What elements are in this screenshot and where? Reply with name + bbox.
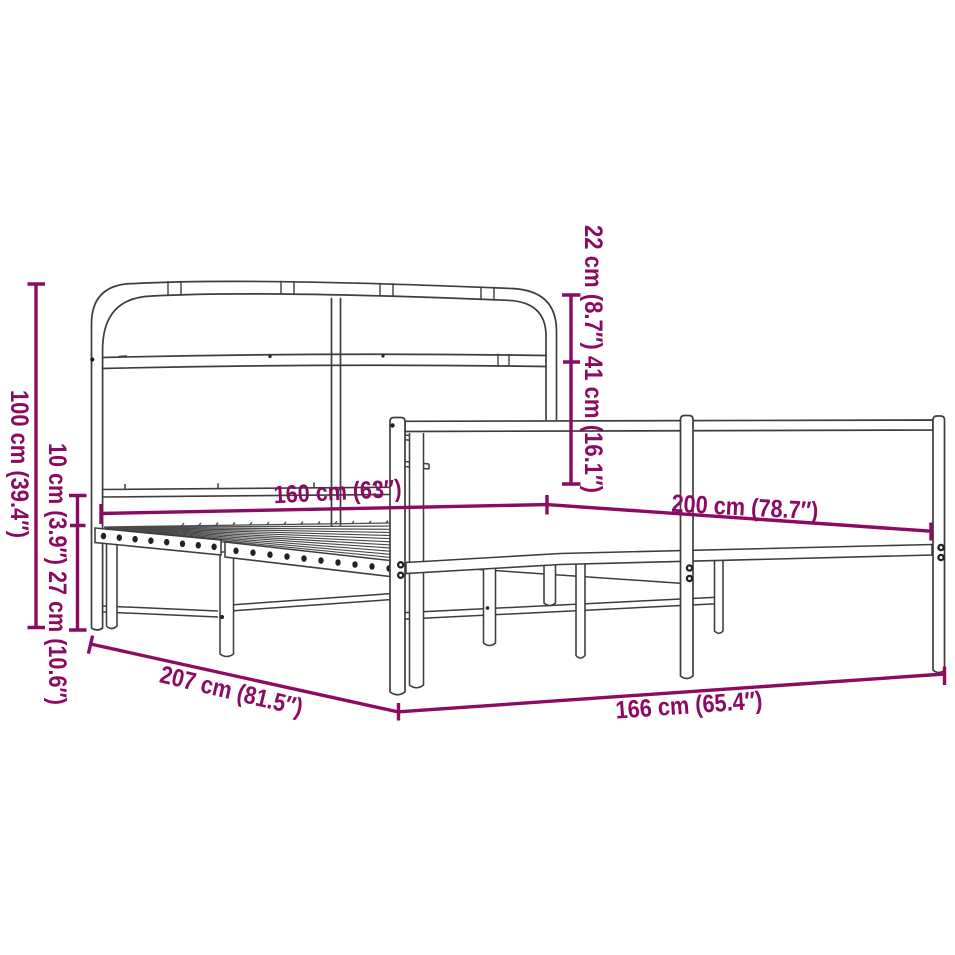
svg-text:100 cm (39.4″): 100 cm (39.4″): [5, 390, 33, 538]
svg-text:22 cm (8.7″) 41 cm (16.1″): 22 cm (8.7″) 41 cm (16.1″): [579, 225, 607, 493]
svg-text:10 cm (3.9″) 27 cm (10.6″): 10 cm (3.9″) 27 cm (10.6″): [43, 443, 71, 705]
